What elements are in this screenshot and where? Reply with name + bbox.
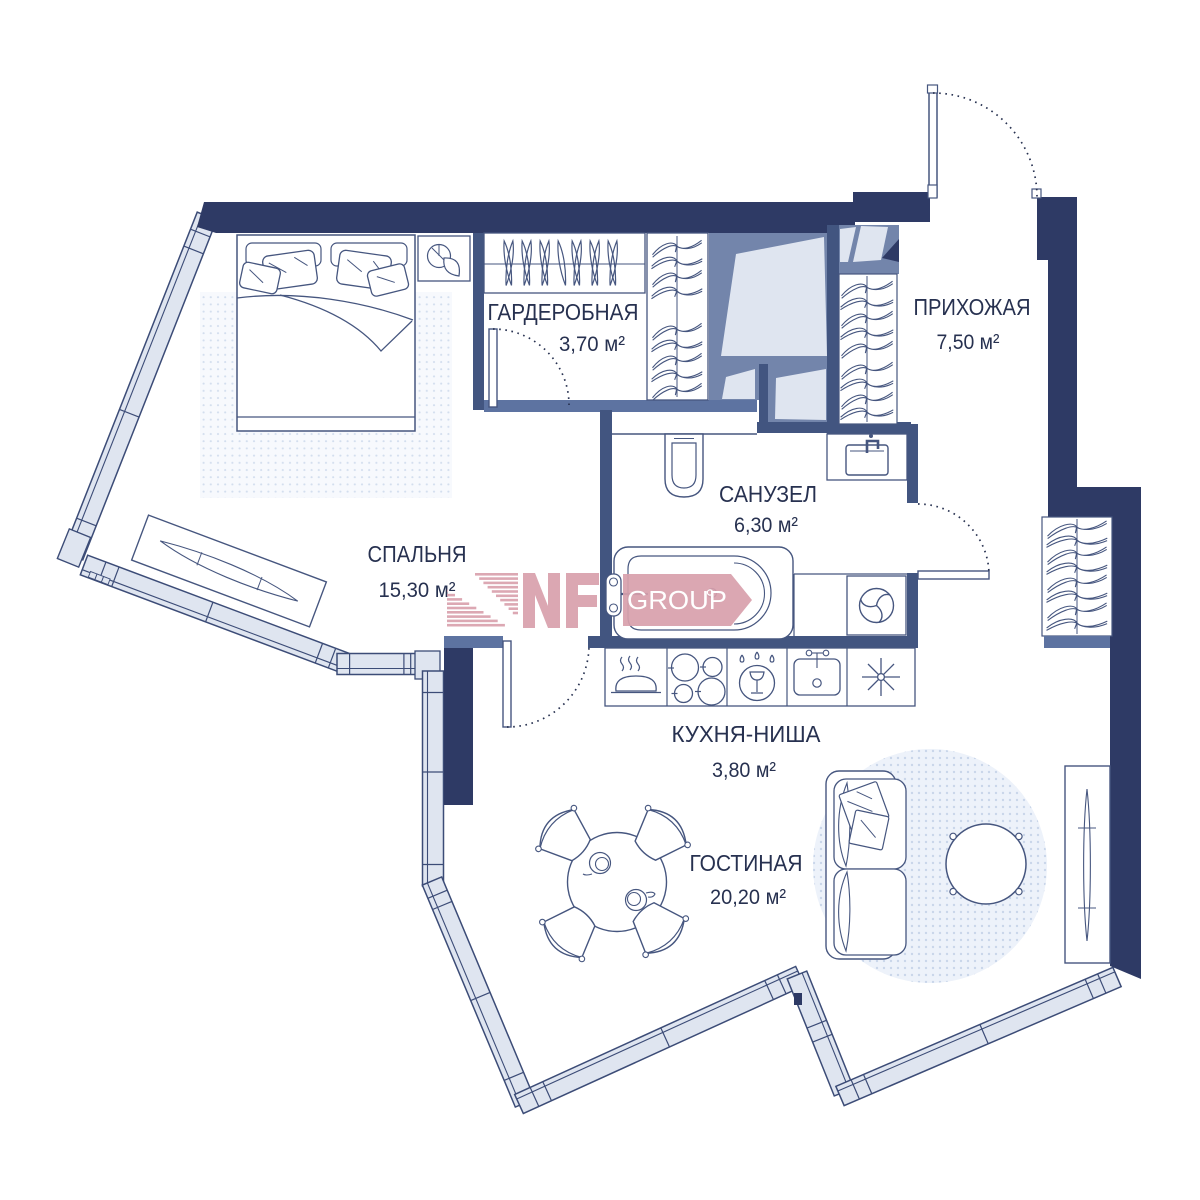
svg-text:15,30 м²: 15,30 м² (379, 579, 456, 602)
svg-text:3,70 м²: 3,70 м² (559, 333, 625, 356)
svg-text:САНУЗЕЛ: САНУЗЕЛ (719, 481, 817, 507)
svg-text:СПАЛЬНЯ: СПАЛЬНЯ (368, 541, 467, 567)
svg-text:GROUP: GROUP (627, 585, 727, 615)
svg-text:КУХНЯ-НИША: КУХНЯ-НИША (672, 721, 822, 747)
svg-text:20,20 м²: 20,20 м² (710, 886, 786, 909)
svg-text:ПРИХОЖАЯ: ПРИХОЖАЯ (914, 294, 1031, 320)
svg-text:7,50 м²: 7,50 м² (937, 331, 1000, 354)
svg-text:ГОСТИНАЯ: ГОСТИНАЯ (690, 850, 803, 876)
svg-text:3,80 м²: 3,80 м² (712, 759, 776, 782)
svg-text:6,30 м²: 6,30 м² (734, 514, 798, 537)
svg-text:ГАРДЕРОБНАЯ: ГАРДЕРОБНАЯ (488, 299, 639, 325)
